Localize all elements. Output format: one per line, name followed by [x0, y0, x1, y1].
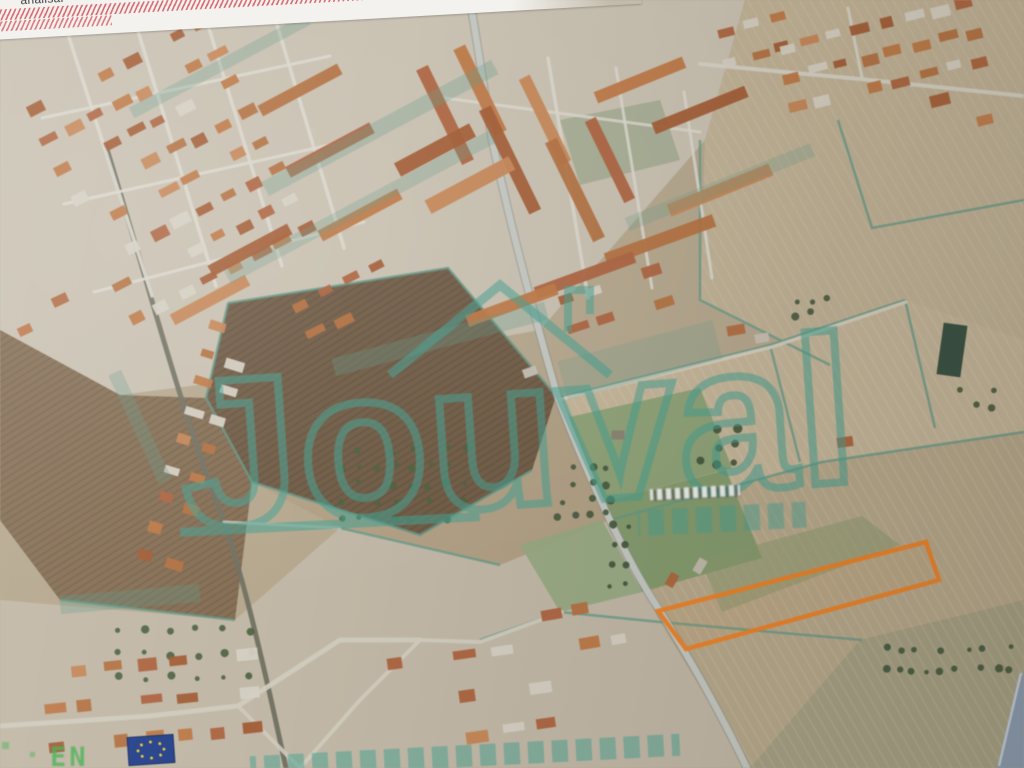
corner-mark-text: EN	[50, 742, 89, 768]
aerial-map-image: Jouval	[0, 0, 1024, 768]
screen-photo: Jouval	[0, 0, 1024, 768]
eu-flag-graphic	[127, 734, 175, 765]
